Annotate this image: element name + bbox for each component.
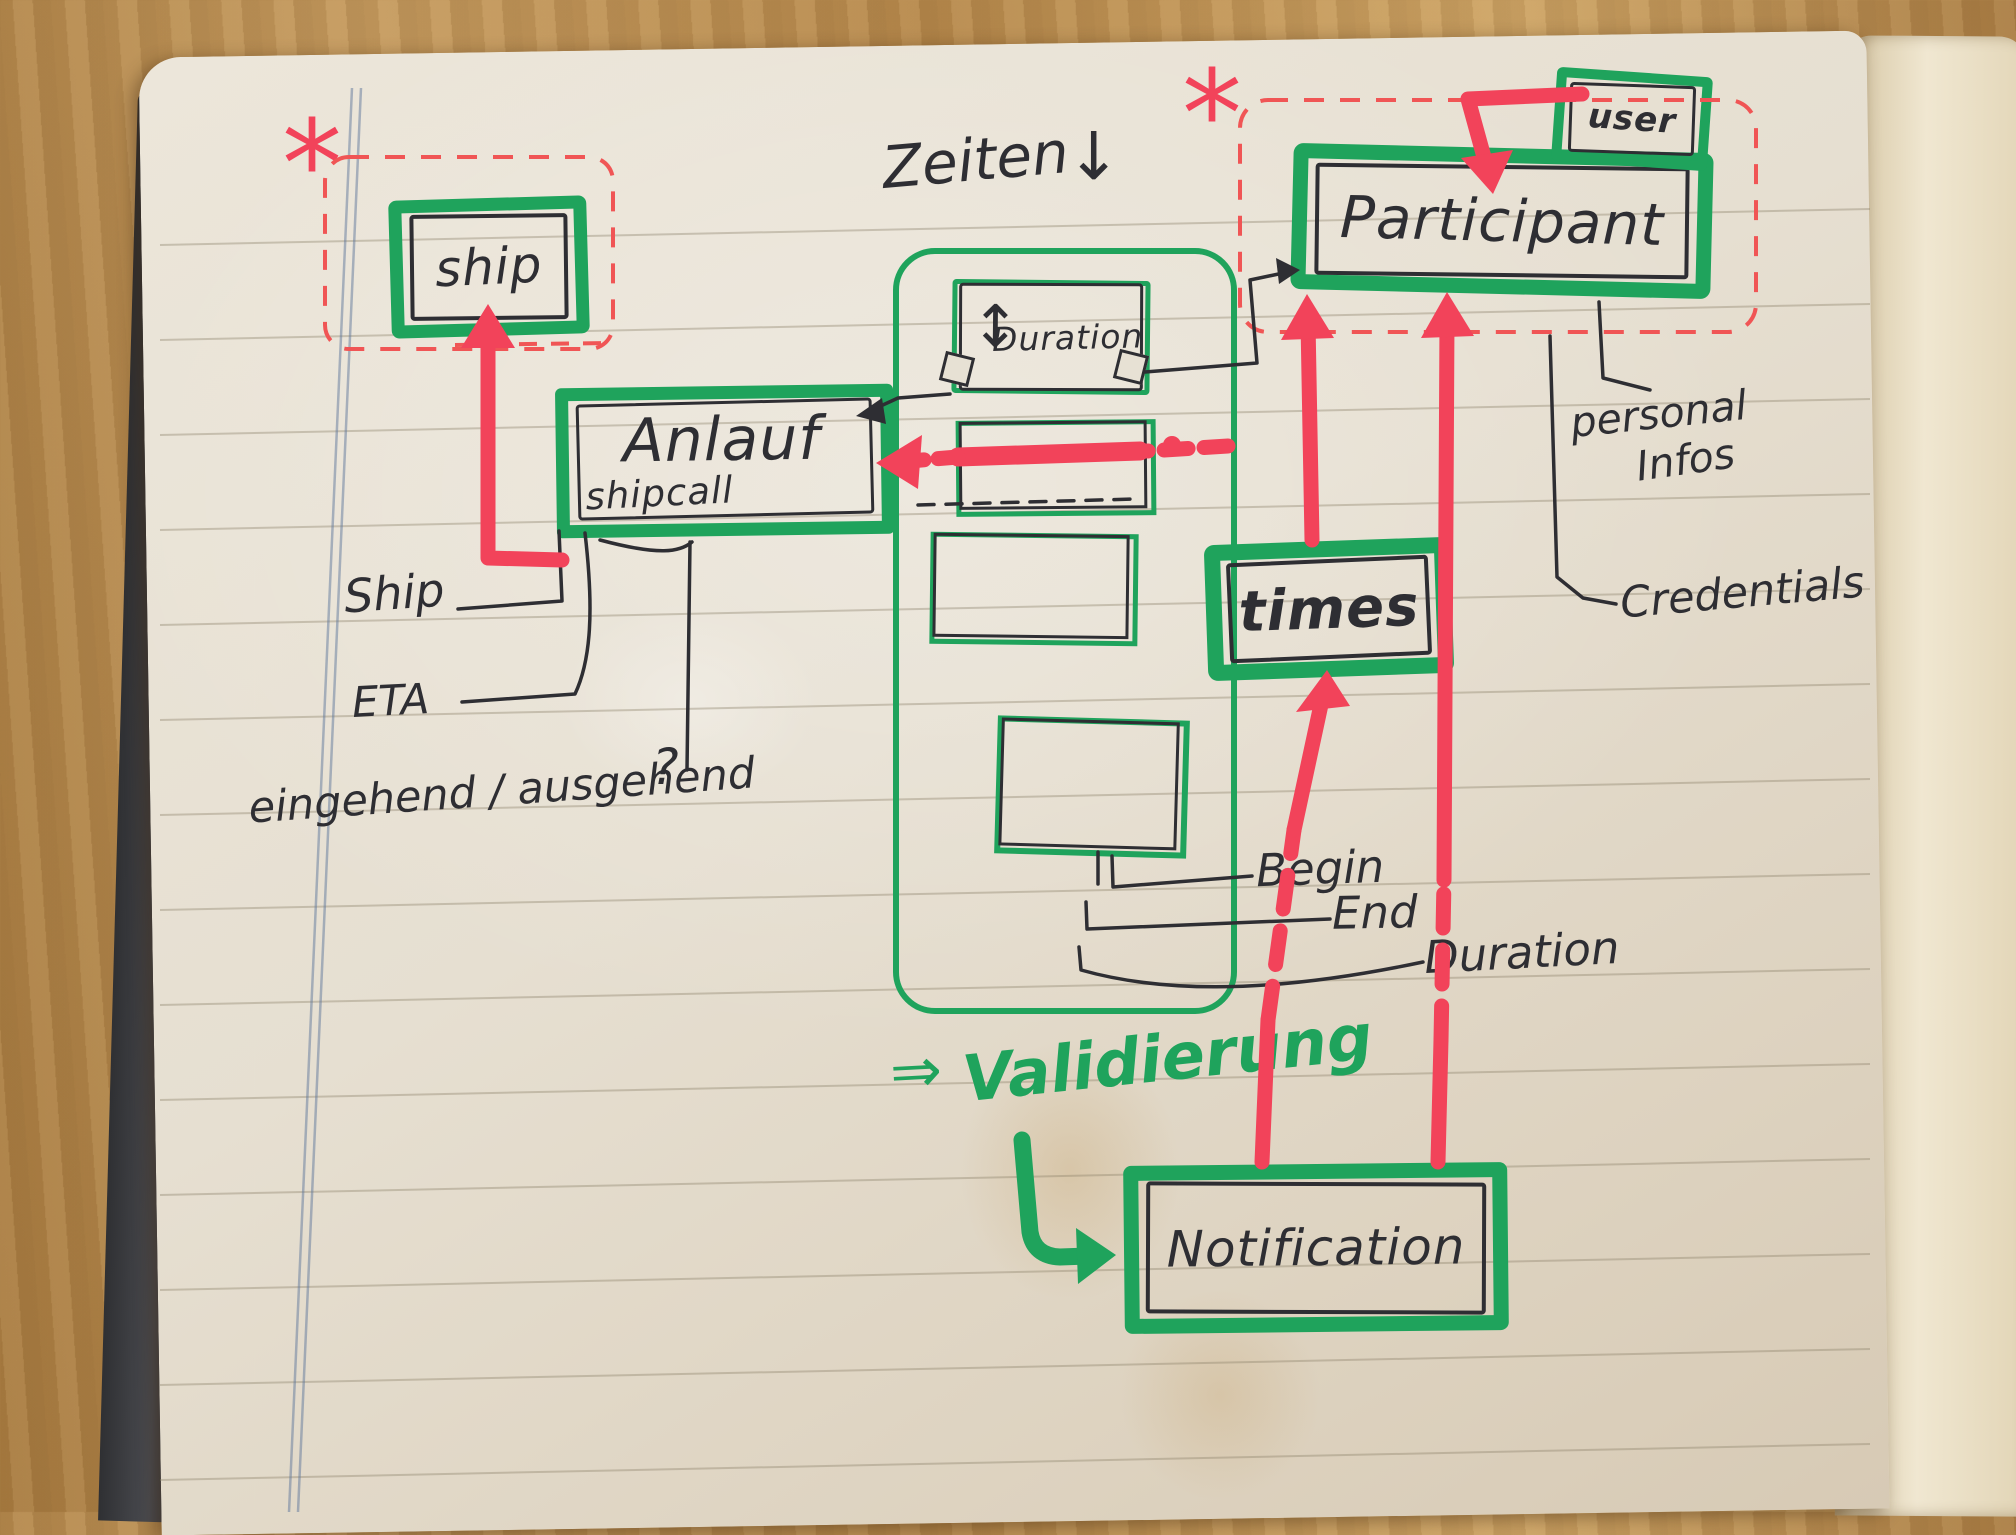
- zeiten-entry-1: [956, 419, 1157, 517]
- entry3-ink: [998, 717, 1180, 850]
- attr-end: End: [1332, 885, 1418, 939]
- anlauf-label: Anlauf: [622, 404, 821, 477]
- participant-ink-rect: [1314, 163, 1689, 280]
- entry1-ink: [959, 420, 1148, 510]
- zeiten-down-arrow-icon: ↓: [1066, 118, 1121, 195]
- times-ink-rect: [1226, 555, 1432, 664]
- node-user: user: [1551, 67, 1713, 172]
- node-notification: Notification: [1123, 1162, 1509, 1334]
- zeiten-entry-2: [929, 532, 1138, 647]
- asterisk-participant: *: [1182, 62, 1242, 170]
- entry2-ink: [932, 533, 1129, 639]
- shipcall-label: shipcall: [584, 468, 734, 518]
- node-anlauf-shipcall: Anlauf shipcall: [555, 384, 895, 539]
- attr-duration: Duration: [1423, 921, 1621, 984]
- zeiten-entry-3: [994, 715, 1190, 858]
- node-ship: ship: [388, 195, 590, 338]
- user-ink-rect: [1568, 82, 1696, 156]
- question-mark: ?: [652, 738, 679, 796]
- node-times: times: [1204, 537, 1455, 682]
- implies-arrow-icon: ⇒: [888, 1033, 944, 1109]
- attr-ship: Ship: [342, 563, 446, 624]
- asterisk-ship: *: [282, 112, 342, 220]
- attr-eta: ETA: [351, 674, 431, 727]
- notification-ink-rect: [1146, 1181, 1486, 1314]
- ship-label: ship: [434, 236, 544, 299]
- notebook-photo: ship Anlauf shipcall ↕ Duration times Pa…: [0, 0, 2016, 1512]
